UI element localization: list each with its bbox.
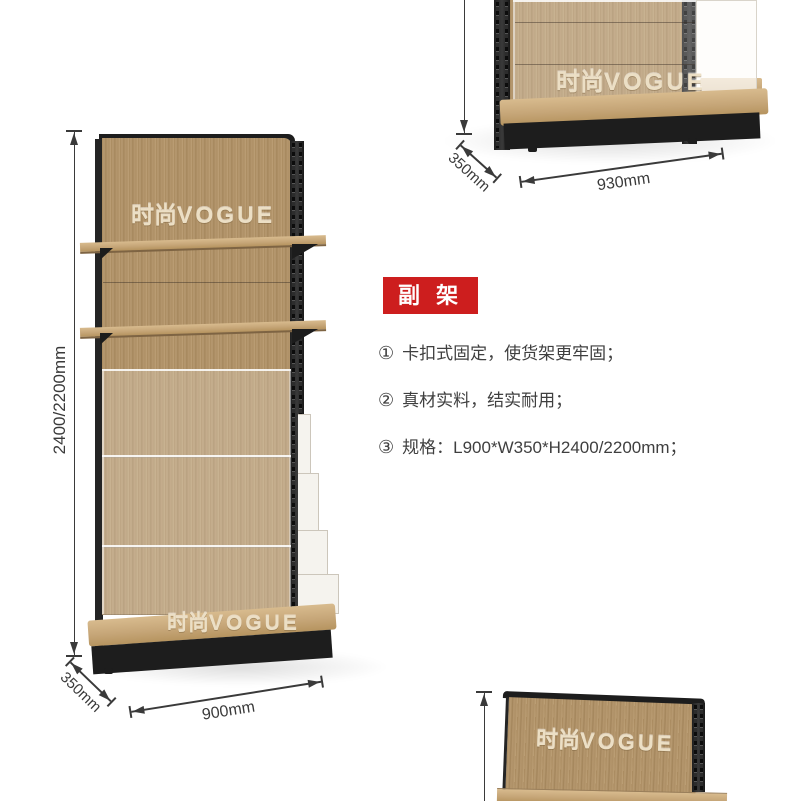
base-foot <box>688 138 697 144</box>
side-pocket-step <box>298 414 311 475</box>
brand-watermark-cn: 时尚 <box>556 69 604 96</box>
brand-watermark-cn: 时尚 <box>167 612 209 635</box>
brand-watermark-en: VOGUE <box>177 202 275 228</box>
product-detail-page: 时尚VOGUE 350mm 930mm <box>0 0 790 801</box>
brand-watermark-en: VOGUE <box>209 612 300 635</box>
panel-seam <box>515 22 695 23</box>
feature-text: 规格：L900*W350*H2400/2200mm； <box>402 436 686 459</box>
acrylic-tier-panel <box>102 369 291 458</box>
feature-text: 卡扣式固定，使货架更牢固； <box>402 342 623 365</box>
feature-item: ② 真材实料，结实耐用； <box>378 389 778 412</box>
acrylic-tier-panel <box>102 455 291 548</box>
feature-list: ① 卡扣式固定，使货架更牢固； ② 真材实料，结实耐用； ③ 规格：L900*W… <box>378 342 778 483</box>
dim-bottom-height-line <box>478 691 491 801</box>
dim-main-height-label: 2400/2200mm <box>50 325 72 475</box>
feature-item: ③ 规格：L900*W350*H2400/2200mm； <box>378 436 778 459</box>
brand-watermark: 时尚VOGUE <box>167 607 300 637</box>
rack-right-post <box>692 703 705 792</box>
brand-watermark: 时尚VOGUE <box>535 722 675 759</box>
side-pocket-step <box>298 530 328 576</box>
base-foot <box>528 146 537 152</box>
section-badge: 副 架 <box>383 277 478 314</box>
feature-number: ② <box>378 389 394 412</box>
panel-seam <box>103 282 290 283</box>
feature-number: ③ <box>378 436 394 459</box>
base-foot <box>104 668 113 674</box>
brand-watermark-cn: 时尚 <box>536 727 581 754</box>
feature-number: ① <box>378 342 394 365</box>
feature-text: 真材实料，结实耐用； <box>402 389 572 412</box>
brand-watermark-cn: 时尚 <box>131 202 177 228</box>
brand-watermark-en: VOGUE <box>604 69 706 96</box>
brand-watermark-en: VOGUE <box>580 728 675 756</box>
side-pocket-step <box>298 473 319 532</box>
base-foot <box>314 650 323 656</box>
feature-item: ① 卡扣式固定，使货架更牢固； <box>378 342 778 365</box>
dim-secondary-height-line <box>458 0 471 135</box>
acrylic-tier-panel <box>102 545 291 615</box>
rack-top-render: 时尚VOGUE <box>470 685 790 801</box>
brand-watermark: 时尚VOGUE <box>131 196 275 230</box>
brand-watermark: 时尚VOGUE <box>556 62 706 97</box>
